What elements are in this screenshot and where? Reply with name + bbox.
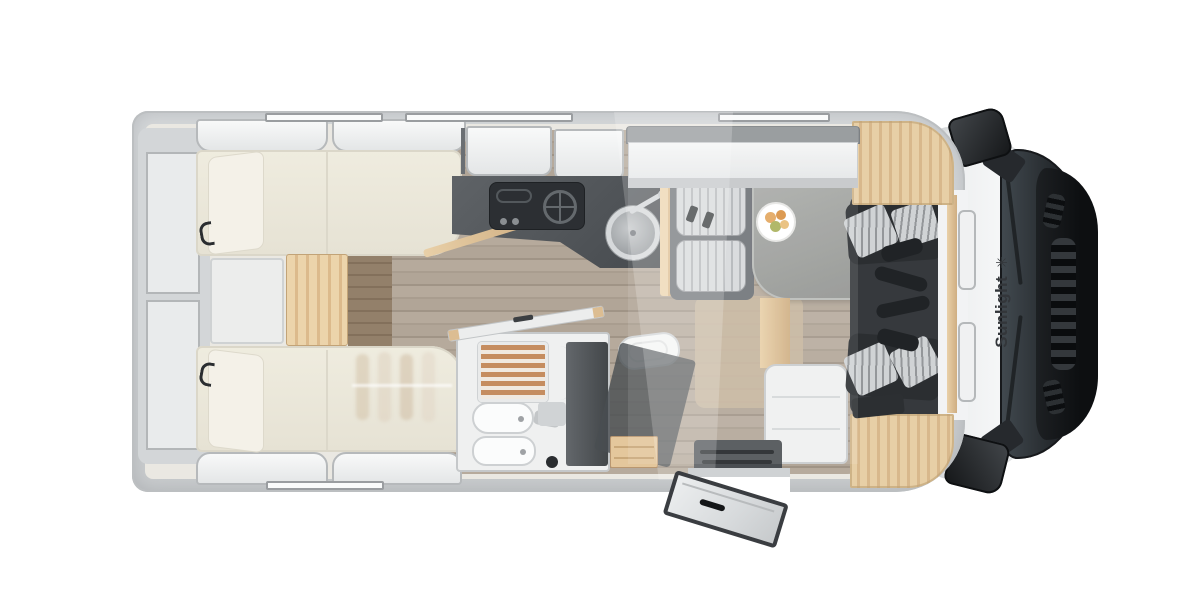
window-frame	[265, 113, 383, 122]
window-frame	[405, 113, 573, 122]
rear-shelf-compartment	[146, 152, 200, 294]
kitchen-overhead-cabinet	[554, 129, 624, 181]
bed-seam	[326, 350, 328, 450]
plate-of-food	[756, 202, 796, 242]
ghost-wardrobe-clothes	[352, 348, 456, 434]
overhead-cabinet	[196, 119, 328, 152]
sink-drain	[630, 230, 636, 236]
grille	[1051, 238, 1076, 370]
brand-logo-icon: ✳	[993, 256, 1011, 269]
overhead-cabinet	[332, 119, 466, 152]
hob-knob	[500, 218, 507, 225]
bed-seam	[326, 152, 328, 254]
toilet-flush-dot	[546, 456, 558, 468]
cab-window-sill	[958, 322, 976, 402]
washbasin-upper	[472, 402, 534, 434]
kitchen-overhead-cabinet	[466, 126, 552, 176]
window-frame	[266, 481, 384, 490]
dashboard-wood-top	[852, 121, 954, 205]
oak-step-chest	[286, 254, 348, 346]
drop-down-bed-lip	[628, 178, 858, 188]
bench-cushion	[676, 240, 746, 292]
drop-down-bed-panel	[628, 142, 858, 180]
brand-lockup: Sunlight ✳	[990, 240, 1014, 364]
cab-seat-top	[843, 198, 943, 268]
hob-knob	[512, 218, 519, 225]
bathroom-corner-counter	[538, 402, 566, 426]
table-pedestal	[760, 298, 790, 368]
bed-pillow	[208, 151, 264, 256]
bed-pillow	[208, 349, 264, 454]
wardrobe-drawers	[610, 436, 658, 468]
cabinet-gap	[461, 128, 465, 174]
bedroom-walkway-dark-wood	[348, 252, 392, 346]
dashboard-edge-strip	[947, 195, 957, 413]
hob-tray	[496, 189, 532, 203]
shower-tray-slats	[478, 342, 548, 402]
brand-label: Sunlight	[992, 276, 1012, 348]
bedside-step	[210, 258, 284, 344]
motorhome-floorplan-render: Sunlight ✳	[0, 0, 1200, 600]
entry-well-tread	[702, 460, 772, 464]
cab-seat-bottom	[843, 330, 943, 402]
washbasin-lower	[472, 436, 536, 466]
rear-shelf-compartment	[146, 300, 200, 450]
bench-cushion	[676, 180, 746, 236]
entry-well-tread	[700, 450, 774, 454]
cab-window-sill	[958, 210, 976, 290]
hob-burner-grate	[545, 206, 575, 208]
window-frame	[718, 113, 830, 122]
